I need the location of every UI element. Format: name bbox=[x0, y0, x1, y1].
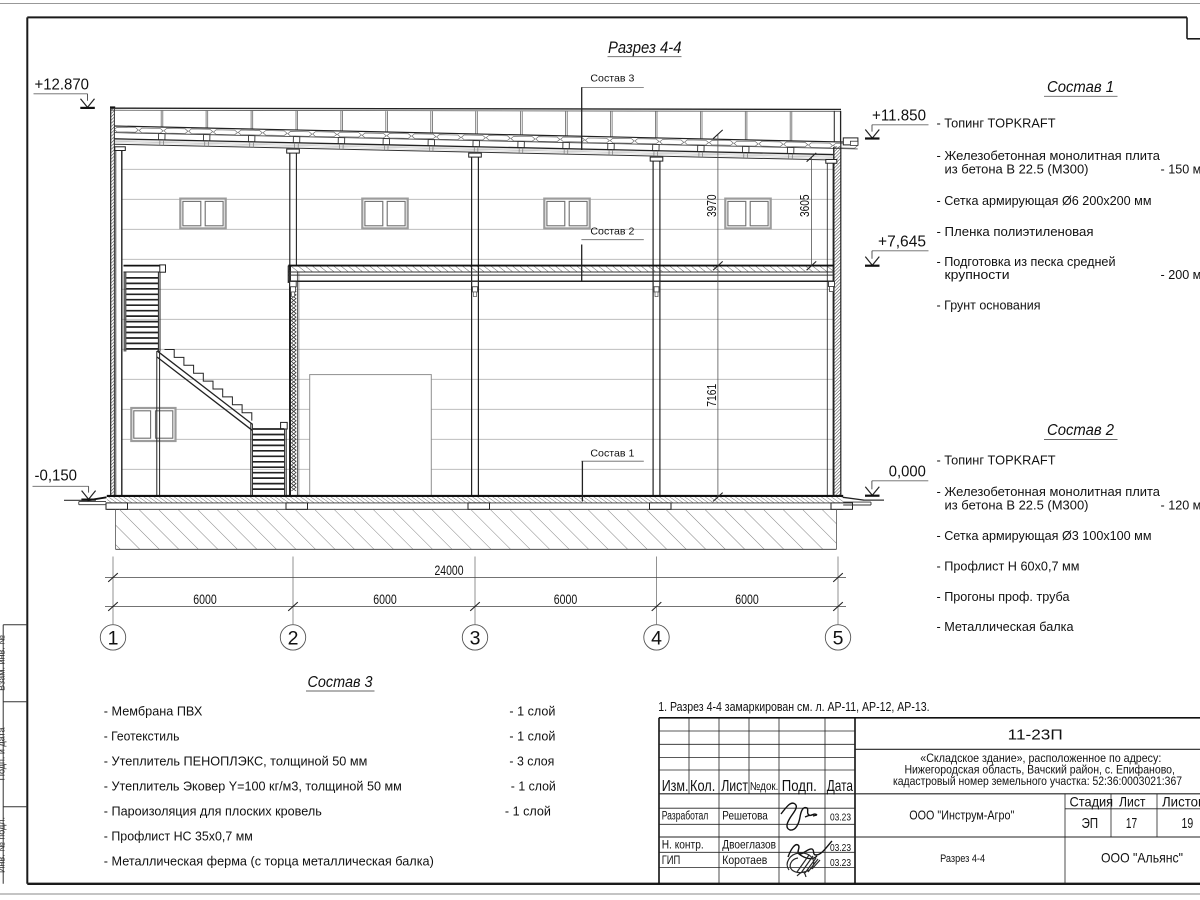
svg-text:+7,645: +7,645 bbox=[878, 233, 926, 250]
svg-text:+11.850: +11.850 bbox=[872, 107, 926, 124]
svg-text:1. Разрез 4-4 замаркирован см.: 1. Разрез 4-4 замаркирован см. л. АР-11,… bbox=[658, 699, 929, 714]
svg-text:- Сетка армирующая Ø6 200х200: - Сетка армирующая Ø6 200х200 мм bbox=[937, 193, 1152, 208]
svg-text:Состав 2: Состав 2 bbox=[1047, 422, 1114, 439]
svg-text:03.23: 03.23 bbox=[830, 813, 851, 824]
svg-text:Взам. инв. №: Взам. инв. № bbox=[0, 635, 7, 691]
svg-text:3970: 3970 bbox=[704, 195, 719, 218]
svg-text:№док.: №док. bbox=[750, 781, 778, 793]
svg-text:Состав 1: Состав 1 bbox=[1047, 79, 1114, 96]
svg-text:из бетона В 22.5 (М300): из бетона В 22.5 (М300) bbox=[945, 498, 1089, 513]
svg-text:+12.870: +12.870 bbox=[35, 77, 90, 94]
svg-text:- Геотекстиль: - Геотекстиль bbox=[104, 728, 180, 743]
svg-text:Дата: Дата bbox=[827, 778, 853, 795]
svg-text:3605: 3605 bbox=[797, 195, 812, 218]
svg-text:- 120 мм: - 120 мм bbox=[1161, 498, 1200, 513]
svg-text:Разработал: Разработал bbox=[662, 810, 709, 822]
svg-text:Состав 2: Состав 2 bbox=[590, 226, 634, 238]
svg-text:Инв. № подл.: Инв. № подл. bbox=[0, 817, 7, 873]
svg-text:3: 3 bbox=[470, 627, 481, 649]
svg-text:Состав 3: Состав 3 bbox=[590, 73, 634, 85]
svg-text:ГИП: ГИП bbox=[662, 855, 681, 867]
svg-text:- 150 мм: - 150 мм bbox=[1161, 161, 1200, 176]
svg-text:Стадия: Стадия bbox=[1070, 795, 1114, 810]
svg-text:Состав 1: Состав 1 bbox=[590, 447, 634, 459]
svg-text:- 1 слой: - 1 слой bbox=[511, 778, 556, 793]
svg-text:- Пароизоляция для плоских кро: - Пароизоляция для плоских кровель bbox=[104, 803, 322, 818]
svg-text:Разрез 4-4: Разрез 4-4 bbox=[608, 39, 682, 57]
svg-text:1: 1 bbox=[108, 627, 119, 649]
svg-text:03.23: 03.23 bbox=[830, 858, 851, 869]
svg-text:2: 2 bbox=[288, 627, 299, 649]
svg-text:ООО "Альянс": ООО "Альянс" bbox=[1101, 850, 1183, 866]
svg-text:- Утеплитель ПЕНОПЛЭКС, толщин: - Утеплитель ПЕНОПЛЭКС, толщиной 50 мм bbox=[104, 753, 368, 768]
svg-text:- Мембрана ПВХ: - Мембрана ПВХ bbox=[104, 703, 203, 718]
svg-text:- Пленка полиэтиленовая: - Пленка полиэтиленовая bbox=[937, 224, 1094, 239]
svg-text:Двоеглазов: Двоеглазов bbox=[722, 838, 776, 852]
svg-text:Подп.: Подп. bbox=[782, 778, 817, 795]
svg-text:- 200 мм: - 200 мм bbox=[1161, 267, 1200, 282]
svg-text:- Грунт основания: - Грунт основания bbox=[937, 298, 1041, 313]
svg-text:Решетова: Решетова bbox=[722, 808, 768, 822]
svg-text:- 1 слой: - 1 слой bbox=[505, 803, 551, 818]
svg-text:Подп. и дата: Подп. и дата bbox=[0, 727, 7, 780]
svg-text:4: 4 bbox=[651, 627, 662, 649]
svg-text:Коротаев: Коротаев bbox=[722, 853, 767, 867]
svg-text:- Топинг TOPKRAFT: - Топинг TOPKRAFT bbox=[937, 116, 1056, 131]
svg-text:Лист: Лист bbox=[721, 778, 748, 795]
svg-text:ООО "Инструм-Агро": ООО "Инструм-Агро" bbox=[909, 808, 1014, 823]
svg-text:6000: 6000 bbox=[193, 592, 217, 607]
svg-text:- Металлическая балка: - Металлическая балка bbox=[937, 619, 1075, 634]
svg-text:24000: 24000 bbox=[435, 563, 464, 578]
svg-text:из бетона В 22.5 (М300): из бетона В 22.5 (М300) bbox=[945, 161, 1089, 176]
svg-text:-0,150: -0,150 bbox=[35, 467, 78, 484]
svg-text:- 3 слоя: - 3 слоя bbox=[509, 753, 554, 768]
svg-text:ЭП: ЭП bbox=[1081, 815, 1098, 832]
svg-text:- Утеплитель Эковер Y=100 кг/м: - Утеплитель Эковер Y=100 кг/м3, толщино… bbox=[104, 778, 402, 793]
svg-text:- 1 слой: - 1 слой bbox=[509, 703, 555, 718]
svg-text:Разрез 4-4: Разрез 4-4 bbox=[940, 853, 985, 865]
svg-text:Лист: Лист bbox=[1119, 795, 1146, 810]
svg-text:Изм.: Изм. bbox=[662, 778, 689, 795]
svg-text:11-23П: 11-23П bbox=[1008, 728, 1063, 744]
svg-text:7161: 7161 bbox=[704, 384, 719, 407]
svg-text:6000: 6000 bbox=[735, 592, 759, 607]
svg-text:Листов: Листов bbox=[1162, 795, 1200, 810]
svg-text:- Профлист Н 60х0,7 мм: - Профлист Н 60х0,7 мм bbox=[937, 559, 1080, 574]
svg-text:- 1 слой: - 1 слой bbox=[509, 728, 555, 743]
svg-text:03.23: 03.23 bbox=[830, 843, 851, 854]
svg-text:кадастровый номер земельного у: кадастровый номер земельного участка: 52… bbox=[893, 774, 1182, 788]
svg-text:- Прогоны проф. труба: - Прогоны проф. труба bbox=[937, 589, 1071, 604]
svg-text:5: 5 bbox=[833, 627, 844, 649]
svg-text:6000: 6000 bbox=[554, 592, 578, 607]
svg-text:- Сетка армирующая Ø3 100х100: - Сетка армирующая Ø3 100х100 мм bbox=[937, 528, 1152, 543]
svg-text:крупности: крупности bbox=[945, 267, 1010, 282]
svg-text:19: 19 bbox=[1182, 815, 1194, 832]
svg-text:Состав 3: Состав 3 bbox=[308, 674, 373, 691]
svg-text:- Металлическая ферма (с торца: - Металлическая ферма (с торца металличе… bbox=[104, 853, 434, 868]
svg-text:- Профлист НС 35х0,7 мм: - Профлист НС 35х0,7 мм bbox=[104, 828, 253, 843]
svg-text:0,000: 0,000 bbox=[889, 464, 926, 481]
svg-text:Кол.: Кол. bbox=[690, 778, 715, 795]
svg-text:Н. контр.: Н. контр. bbox=[662, 840, 704, 852]
svg-text:6000: 6000 bbox=[373, 592, 397, 607]
svg-text:- Топинг TOPKRAFT: - Топинг TOPKRAFT bbox=[937, 453, 1056, 468]
svg-text:17: 17 bbox=[1126, 815, 1137, 832]
